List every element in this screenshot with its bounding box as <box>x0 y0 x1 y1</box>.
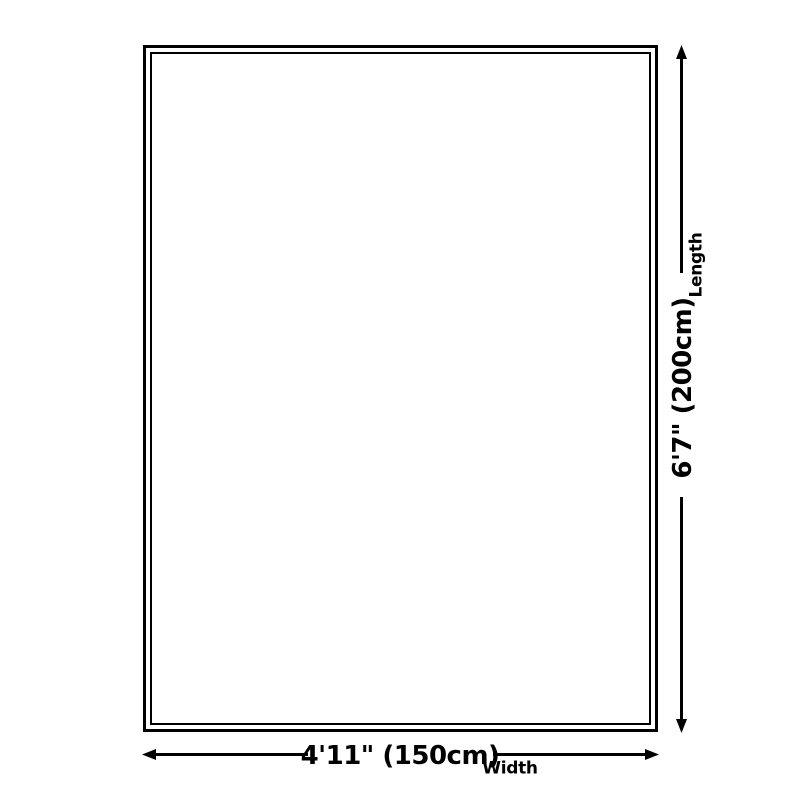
rug-outline-inner-border <box>150 52 651 725</box>
width-value: 4'11" (150cm) <box>301 743 500 769</box>
length-label: Length <box>689 232 706 297</box>
length-value: 6'7" (200cm) <box>670 297 696 478</box>
width-arrow-left-head <box>142 749 156 760</box>
rug-outline-outer-border <box>143 45 658 732</box>
width-label: Width <box>482 761 537 778</box>
length-arrow-up-head <box>676 45 687 59</box>
length-arrow-down-head <box>676 719 687 733</box>
size-diagram: 6'7" (200cm) Length 4'11" (150cm) Width <box>0 0 800 800</box>
width-arrow-right-head <box>645 749 659 760</box>
